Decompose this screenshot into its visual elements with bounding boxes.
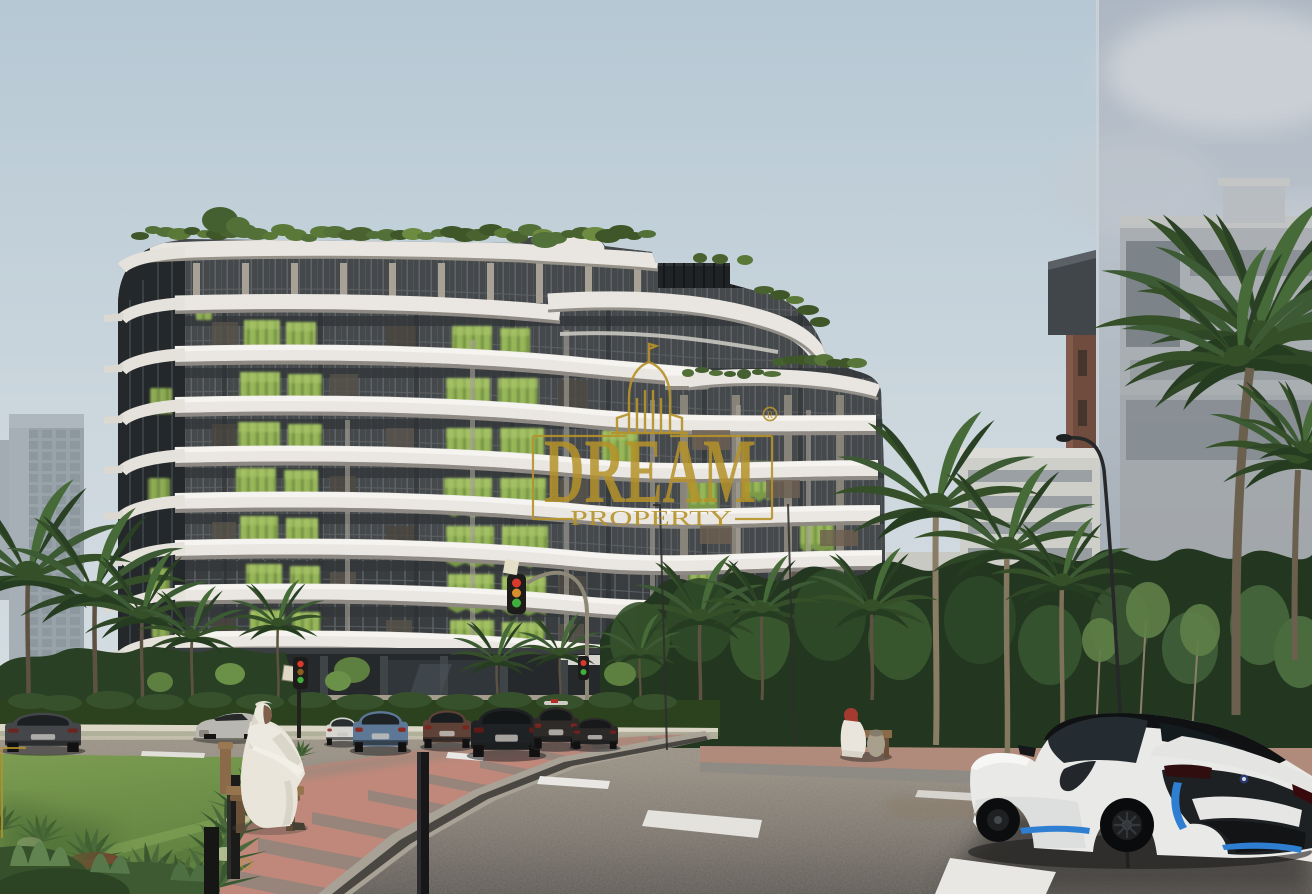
svg-text:PROPERTY: PROPERTY <box>570 506 732 530</box>
svg-text:R: R <box>767 410 773 420</box>
